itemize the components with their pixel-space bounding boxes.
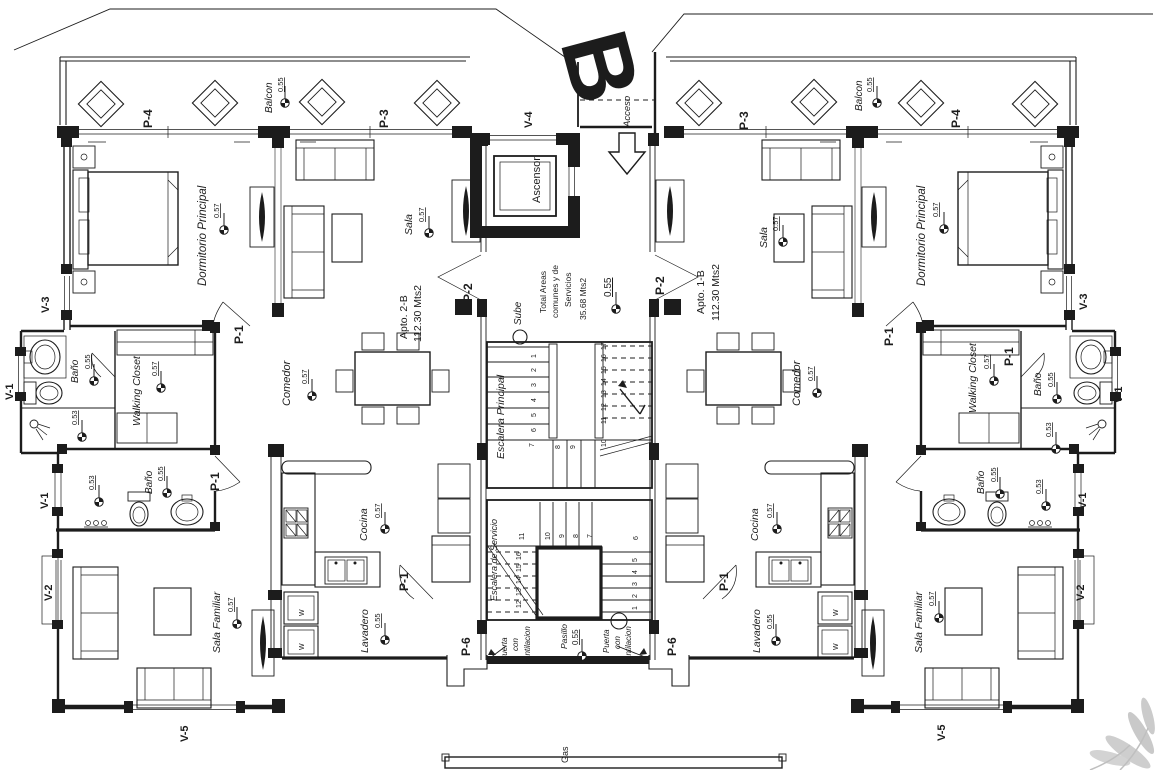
- dormitorio-marker-right-icon: [940, 212, 948, 233]
- elevator-label: Ascensor: [531, 157, 543, 203]
- property-line-right: [652, 14, 1153, 52]
- cocina-level-left: 0.57: [373, 503, 382, 518]
- vent-door-left-line1: Puerta: [500, 637, 509, 661]
- comedor-marker-left-icon: [308, 379, 316, 400]
- door-tag-p3-left: P-3: [377, 109, 391, 128]
- walking-closet-label-left: Walking Closet: [131, 355, 143, 426]
- door-tag-p3-right: P-3: [737, 111, 751, 130]
- shower-lower-marker-right-icon: [1042, 489, 1050, 510]
- washer-label-left-2: W: [299, 643, 306, 650]
- dormitorio-label-left: Dormitorio Principal: [197, 185, 209, 286]
- vent-door-right-line3: ventilacion: [624, 626, 633, 664]
- main-step-8: 8: [555, 445, 562, 449]
- acceso-arrow-icon: [609, 133, 645, 174]
- pasillo-level: 0.55: [571, 629, 580, 645]
- main-step-1: 1: [531, 354, 538, 358]
- door-tag-p6-right: P-6: [665, 637, 679, 656]
- window-tag-v2-right: V-2: [1075, 584, 1087, 601]
- svc-step-7: 7: [587, 534, 594, 538]
- apartment-name-right: Apto. 1-B: [695, 270, 707, 314]
- svc-step-1: 1: [632, 606, 639, 610]
- vent-door-left-line3: ventilacion: [523, 626, 532, 664]
- shower-lower-level-left: 0.53: [87, 475, 96, 490]
- apartment-area-right: 112.30 Mts2: [710, 264, 722, 321]
- sala-label-right: Sala: [758, 227, 770, 248]
- main-stair-numbers: 1 2 3 4 5 6 7 8 9 10 11 12 13 14 15 16 1…: [529, 342, 608, 449]
- balcon-level-right: 0.55: [865, 77, 874, 92]
- main-stair-label: Escalera Principal: [495, 374, 507, 459]
- bano-upper-level-left: 0.55: [83, 354, 92, 369]
- door-tag-p6-left: P-6: [459, 637, 473, 656]
- sala-label-left: Sala: [403, 214, 415, 235]
- sala-familiar-label-right: Sala Familiar: [913, 591, 925, 653]
- window-tag-v5-right: V-5: [936, 724, 948, 741]
- dormitorio-level-right: 0.57: [931, 202, 940, 217]
- svc-step-13: 13: [516, 588, 523, 596]
- comedor-level-left: 0.57: [300, 369, 309, 384]
- lavadero-level-left: 0.55: [373, 613, 382, 628]
- door-tag-p1-lavadero-right: P-1: [717, 572, 731, 591]
- sala-level-right: 0.57: [771, 216, 780, 231]
- main-step-15: 15: [601, 366, 608, 374]
- window-tag-v1-upper-left: V-1: [4, 383, 16, 400]
- elevator-shaft: [470, 133, 580, 238]
- gas-label: Gas: [560, 746, 570, 763]
- svc-step-6: 6: [633, 536, 640, 540]
- window-tag-v2-left: V-2: [43, 584, 55, 601]
- common-areas-value: 35.68 Mts2: [578, 278, 588, 320]
- door-tag-p1-bedroom-right: P-1: [882, 327, 896, 346]
- dormitorio-level-left: 0.57: [212, 203, 221, 218]
- svc-step-2: 2: [632, 594, 639, 598]
- bano-upper-level-right: 0.55: [1046, 372, 1055, 387]
- cocina-label-left: Cocina: [358, 508, 370, 541]
- shower-upper-marker-left-icon: [78, 420, 86, 441]
- shower-upper-level-left: 0.53: [70, 410, 79, 425]
- apartment-left-linework: [15, 57, 488, 713]
- dormitorio-marker-left-icon: [220, 213, 228, 234]
- shower-upper-marker-right-icon: [1052, 432, 1060, 453]
- washer-label-right-2: W: [833, 643, 840, 650]
- door-tag-p1-lavadero-left: P-1: [397, 572, 411, 591]
- washer-label-left-1: W: [299, 609, 306, 616]
- walking-closet-level-right: 0.57: [982, 354, 991, 369]
- sala-familiar-marker-right-icon: [935, 601, 943, 622]
- main-staircase: [487, 342, 652, 488]
- vent-door-right-line1: Puerta: [602, 629, 611, 653]
- main-step-11: 11: [601, 417, 608, 424]
- common-areas-line3: Servicios: [563, 273, 573, 307]
- sala-familiar-level-right: 0.57: [927, 591, 936, 606]
- door-tag-p1-bath-left: P-1: [208, 472, 222, 491]
- svc-step-11: 11: [519, 533, 526, 540]
- main-step-7: 7: [529, 443, 536, 447]
- acceso-label: Acceso: [622, 96, 633, 128]
- lavadero-label-right: Lavadero: [751, 609, 763, 653]
- service-stair-numbers: 1 2 3 4 5 6 7 8 9 10 11 12 13 14 15 16: [516, 532, 640, 610]
- main-step-6: 6: [531, 428, 538, 432]
- window-tag-v1-upper-right: V-1: [1113, 386, 1125, 403]
- window-tag-v5-left: V-5: [179, 725, 191, 742]
- window-tag-v1-lower-right: V-1: [1077, 492, 1089, 509]
- bano-lower-label-right: Baño: [976, 470, 987, 494]
- balcon-label-right: Balcon: [854, 80, 865, 111]
- sala-familiar-level-left: 0.57: [226, 597, 235, 612]
- door-tag-p1-bath-right: P-1: [1002, 347, 1016, 366]
- block-letter: B: [540, 20, 660, 114]
- comedor-level-right: 0.57: [806, 366, 815, 381]
- service-staircase: [487, 500, 652, 629]
- comedor-label-right: Comedor: [791, 359, 803, 406]
- washer-label-right-1: W: [833, 609, 840, 616]
- bano-upper-label-left: Baño: [70, 359, 81, 383]
- palm-leaf-decoration: [1088, 696, 1155, 770]
- common-areas-line2: comunes y de: [550, 265, 560, 318]
- main-step-17: 17: [601, 342, 608, 350]
- property-line-left: [14, 9, 572, 62]
- main-step-9: 9: [570, 445, 577, 449]
- svc-step-5: 5: [632, 558, 639, 562]
- door-tag-p2-left: P-2: [461, 283, 475, 302]
- shower-upper-level-right: 0.53: [1044, 422, 1053, 437]
- cocina-marker-right-icon: [773, 512, 781, 533]
- main-step-4: 4: [531, 398, 538, 402]
- shower-lower-level-right: 0.53: [1034, 479, 1043, 494]
- vent-door-right-line2: con: [613, 636, 622, 649]
- sala-familiar-label-left: Sala Familiar: [211, 591, 223, 653]
- gas-strip: [442, 754, 786, 768]
- lavadero-marker-left-icon: [381, 623, 389, 644]
- balcon-level-left: 0.55: [276, 77, 285, 92]
- lavadero-level-right: 0.55: [765, 614, 774, 629]
- floor-plan-drawing: B V-4 Ascensor Acceso Sube Total Areas c…: [0, 0, 1155, 770]
- door-tag-p1-bedroom-left: P-1: [232, 325, 246, 344]
- sala-level-left: 0.57: [417, 207, 426, 222]
- sube-label: Sube: [513, 301, 524, 325]
- door-tag-p2-right: P-2: [653, 276, 667, 295]
- floor-plan-page: B V-4 Ascensor Acceso Sube Total Areas c…: [0, 0, 1155, 770]
- main-step-2: 2: [531, 368, 538, 372]
- walking-closet-marker-right-icon: [990, 364, 998, 385]
- main-step-3: 3: [531, 383, 538, 387]
- svc-step-4: 4: [632, 570, 639, 574]
- main-step-13: 13: [601, 390, 608, 398]
- svc-step-14: 14: [516, 576, 523, 584]
- apartment-name-left: Apto. 2-B: [398, 295, 410, 339]
- apartment-area-left: 112.30 Mts2: [412, 285, 424, 342]
- door-tag-p4-left: P-4: [141, 109, 155, 128]
- main-step-5: 5: [531, 413, 538, 417]
- service-stair-label: Escalera de Servicio: [489, 519, 499, 601]
- bano-lower-level-right: 0.55: [989, 467, 998, 482]
- comedor-label-left: Comedor: [281, 359, 293, 406]
- cocina-marker-left-icon: [381, 512, 389, 533]
- lavadero-label-left: Lavadero: [359, 609, 371, 653]
- bano-lower-label-left: Baño: [144, 470, 155, 494]
- window-tag-v4: V-4: [523, 111, 535, 128]
- svc-step-9: 9: [559, 534, 566, 538]
- cocina-level-right: 0.57: [765, 503, 774, 518]
- bano-lower-level-left: 0.55: [156, 466, 165, 481]
- svc-step-16: 16: [516, 552, 523, 560]
- svc-step-15: 15: [516, 564, 523, 572]
- pasillo-label: Pasillo: [559, 624, 569, 649]
- window-tag-v3-left: V-3: [40, 296, 52, 313]
- balcon-label-left: Balcon: [264, 82, 275, 113]
- main-step-10: 10: [601, 439, 608, 447]
- svc-step-10: 10: [545, 532, 552, 540]
- svc-step-3: 3: [632, 582, 639, 586]
- walking-closet-level-left: 0.57: [150, 361, 159, 376]
- core-level-value: 0.55: [603, 277, 614, 297]
- window-tag-v1-lower-left: V-1: [39, 492, 51, 509]
- main-step-16: 16: [601, 354, 608, 362]
- shower-lower-marker-left-icon: [95, 485, 103, 506]
- vent-door-left-line2: con: [511, 638, 520, 651]
- sala-marker-right-icon: [779, 225, 787, 246]
- balcon-marker-right-icon: [873, 86, 881, 107]
- main-step-12: 12: [601, 403, 608, 411]
- cocina-label-right: Cocina: [749, 508, 761, 541]
- window-tag-v3-right: V-3: [1078, 293, 1090, 310]
- sala-marker-left-icon: [425, 216, 433, 237]
- common-areas-line1: Total Areas: [538, 271, 548, 313]
- walking-closet-label-right: Walking Closet: [967, 342, 979, 413]
- main-step-14: 14: [601, 378, 608, 386]
- bano-upper-label-right: Baño: [1033, 372, 1044, 396]
- dormitorio-label-right: Dormitorio Principal: [916, 185, 928, 286]
- svc-step-12: 12: [516, 600, 523, 608]
- door-tag-p4-right: P-4: [949, 109, 963, 128]
- svc-step-8: 8: [573, 534, 580, 538]
